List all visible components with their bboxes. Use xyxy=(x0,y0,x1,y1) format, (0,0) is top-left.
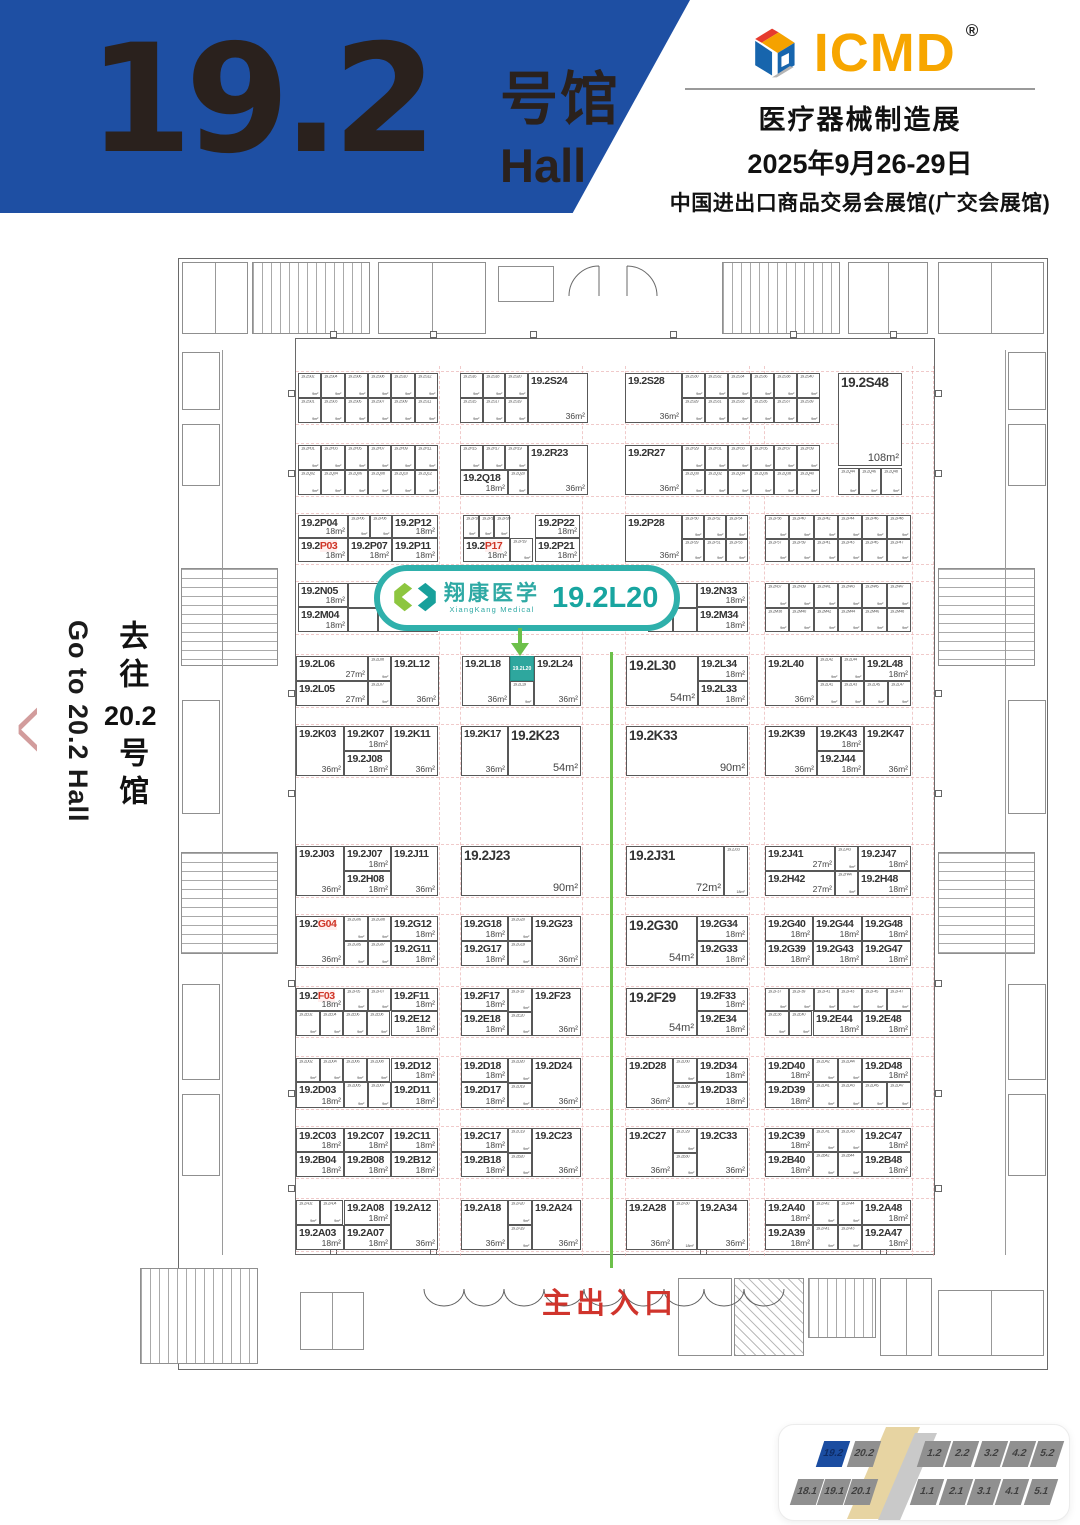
booth-19.2R05: 19.2R059m² xyxy=(345,445,368,470)
booth-19.2F39: 19.2F399m² xyxy=(789,988,813,1011)
booth-19.2D08: 19.2D089m² xyxy=(367,1058,391,1082)
booth-19.2L20: 19.2L20 xyxy=(510,656,534,681)
booth-19.2M38: 19.2M389m² xyxy=(765,608,789,633)
booth-19.2B08: 19.2B0818m² xyxy=(344,1152,391,1177)
booth-19.2J23: 19.2J2390m² xyxy=(461,846,581,896)
booth-19.2P21: 19.2P2118m² xyxy=(535,538,580,562)
booth-19.2Q18: 19.2Q1818m² xyxy=(460,470,508,495)
booth-19.2A08: 19.2A0818m² xyxy=(344,1200,391,1225)
registered-mark: ® xyxy=(966,21,979,41)
booth-19.2Q44: 19.2Q449m² xyxy=(838,468,859,495)
row-guide-line xyxy=(296,1251,934,1252)
booth-19.2L33: 19.2L3318m² xyxy=(698,681,748,706)
booth-19.2P39: 19.2P399m² xyxy=(789,539,813,563)
structure-vline xyxy=(222,350,223,1255)
aisle-guide-line xyxy=(749,366,750,1256)
booth-19.2S16: 19.2S169m² xyxy=(460,373,483,398)
booth-19.2J33: 19.2J3318m² xyxy=(724,846,748,896)
booth-19.2N39: 19.2N399m² xyxy=(789,583,813,608)
booth-19.2G34: 19.2G3418m² xyxy=(697,916,748,941)
aisle-guide-line xyxy=(764,366,765,1256)
booth-19.2R15: 19.2R159m² xyxy=(460,445,483,470)
booth-19.2S33: 19.2S339m² xyxy=(728,398,751,423)
booth-19.2S10: 19.2S109m² xyxy=(391,373,414,398)
booth-19.2E20: 19.2E209m² xyxy=(508,1012,532,1036)
booth-19.2G17: 19.2G1718m² xyxy=(461,941,508,966)
booth-19.2S34: 19.2S349m² xyxy=(728,373,751,398)
booth-19.2B30: 19.2B309m² xyxy=(673,1153,697,1178)
booth-19.2G04: 19.2G0436m² xyxy=(296,916,344,966)
aisle-guide-line xyxy=(460,366,461,1256)
booth-19.2A20: 19.2A209m² xyxy=(508,1200,532,1225)
booth-19.2B04: 19.2B0418m² xyxy=(296,1152,344,1177)
structure-stairsv xyxy=(181,568,278,666)
booth-19.2G06: 19.2G069m² xyxy=(344,916,368,941)
booth-19.2E04: 19.2E049m² xyxy=(320,1011,344,1036)
booth-19.2S04: 19.2S049m² xyxy=(321,373,344,398)
booth-19.2C43: 19.2C439m² xyxy=(838,1128,863,1152)
booth-19.2D19: 19.2D199m² xyxy=(508,1083,532,1108)
booth-19.2M44: 19.2M449m² xyxy=(838,608,862,633)
structure-room xyxy=(498,266,554,302)
hall-banner: 19.2 号馆 Hall xyxy=(0,0,690,213)
expo-name: 医疗器械制造展 xyxy=(645,98,1075,137)
booth-19.2S31: 19.2S319m² xyxy=(705,398,728,423)
booth-19.2E48: 19.2E4818m² xyxy=(862,1011,911,1036)
structure-room xyxy=(182,424,220,486)
booth-19.2P28: 19.2P2836m² xyxy=(625,515,682,562)
booth-19.2G11: 19.2G1118m² xyxy=(391,941,438,966)
brand-name: ICMD xyxy=(814,22,956,84)
structure-room2 xyxy=(300,1292,364,1350)
structure-stairs xyxy=(722,262,840,334)
overview-minimap: 19.220.21.22.23.24.25.218.119.120.11.12.… xyxy=(778,1424,1070,1521)
booth-19.2Q48: 19.2Q489m² xyxy=(881,468,902,495)
booth-19.2N43: 19.2N439m² xyxy=(838,583,862,608)
booth-19.2S29: 19.2S299m² xyxy=(682,398,705,423)
booth-19.2H08: 19.2H0818m² xyxy=(344,871,391,896)
booth-19.2A02: 19.2A029m² xyxy=(296,1200,320,1225)
booth-19.2A18: 19.2A1836m² xyxy=(461,1200,508,1250)
structure-room xyxy=(182,1094,220,1176)
header-divider xyxy=(685,88,1035,90)
booth-19.2E18: 19.2E1818m² xyxy=(461,1011,508,1036)
booth-19.2A04: 19.2A049m² xyxy=(320,1200,344,1225)
booth-19.2F41: 19.2F419m² xyxy=(814,988,838,1011)
booth-19.2Q12: 19.2Q129m² xyxy=(415,470,438,495)
structure-room xyxy=(182,984,220,1080)
booth-19.2L48: 19.2L4818m² xyxy=(864,656,911,681)
booth-19.2C17: 19.2C1718m² xyxy=(461,1128,508,1152)
booth-19.2R03: 19.2R039m² xyxy=(321,445,344,470)
structure-door xyxy=(935,790,942,797)
booth-19.2N47: 19.2N479m² xyxy=(887,583,911,608)
booth-19.2D11: 19.2D1118m² xyxy=(391,1082,438,1108)
aisle-guide-line xyxy=(625,366,626,1256)
structure-door xyxy=(935,1090,942,1097)
booth-19.2R37: 19.2R379m² xyxy=(774,445,797,470)
booth-19.2F03: 19.2F0318m² xyxy=(296,988,344,1011)
row-guide-line xyxy=(296,967,934,968)
booth-19.2P33: 19.2P339m² xyxy=(726,539,748,563)
booth-19.2K07: 19.2K0718m² xyxy=(344,726,391,751)
booth-19.2P08: 19.2P089m² xyxy=(370,515,392,538)
structure-stairs xyxy=(252,262,370,334)
booth-19.2C29: 19.2C299m² xyxy=(673,1128,697,1153)
expo-date: 2025年9月26-29日 xyxy=(645,142,1075,181)
booth-19.2F17: 19.2F1718m² xyxy=(461,988,508,1011)
booth-19.2Q46: 19.2Q469m² xyxy=(859,468,880,495)
booth-19.2B12: 19.2B1218m² xyxy=(391,1152,438,1177)
structure-room xyxy=(1008,352,1046,410)
structure-room2 xyxy=(182,262,248,334)
booth-19.2L30: 19.2L3054m² xyxy=(626,656,698,706)
booth-19.2S38: 19.2S389m² xyxy=(774,373,797,398)
booth-19.2E08: 19.2E089m² xyxy=(367,1011,391,1036)
booth-19.2E34: 19.2E3418m² xyxy=(697,1011,748,1036)
booth-19.2L05: 19.2L0527m² xyxy=(296,681,368,706)
booth-19.2P43: 19.2P439m² xyxy=(838,539,862,563)
booth-19.2J44: 19.2J4418m² xyxy=(817,751,864,776)
booth-19.2K43: 19.2K4318m² xyxy=(817,726,864,751)
booth-19.2A07: 19.2A0718m² xyxy=(344,1225,391,1250)
booth-19.2A03: 19.2A0318m² xyxy=(296,1225,344,1250)
booth-19.2E12: 19.2E1218m² xyxy=(391,1011,438,1036)
booth-19.2Q04: 19.2Q049m² xyxy=(321,470,344,495)
booth-19.2K33: 19.2K3390m² xyxy=(626,726,748,776)
booth-19.2D47: 19.2D479m² xyxy=(887,1082,912,1108)
booth-19.2G07: 19.2G079m² xyxy=(368,941,392,966)
booth-19.2D20: 19.2D209m² xyxy=(508,1058,532,1083)
booth-19.2G44: 19.2G4418m² xyxy=(813,916,862,941)
booth-19.2R09: 19.2R099m² xyxy=(391,445,414,470)
booth-19.2Q08: 19.2Q089m² xyxy=(368,470,391,495)
aisle-guide-line xyxy=(933,366,934,1256)
callout-arrow-icon xyxy=(518,628,522,644)
goto-cn-bottom: 号馆 xyxy=(108,737,152,813)
booth-19.2B20: 19.2B209m² xyxy=(508,1153,532,1178)
booth-19.2L40: 19.2L4036m² xyxy=(765,656,817,706)
company-name-en: XiangKang Medical xyxy=(449,606,534,614)
booth-19.2L44: 19.2L449m² xyxy=(841,656,865,681)
booth-19.2A24: 19.2A2436m² xyxy=(532,1200,581,1250)
booth-19.2D18: 19.2D1818m² xyxy=(461,1058,508,1082)
booth-19.2G20: 19.2G209m² xyxy=(508,916,532,941)
structure-door xyxy=(935,1185,942,1192)
icmd-cube-icon xyxy=(742,23,804,83)
structure-door xyxy=(288,980,295,987)
booth-19.2J07: 19.2J0718m² xyxy=(344,846,391,871)
structure-room2 xyxy=(938,1290,1044,1356)
booth-19.2S28: 19.2S2836m² xyxy=(625,373,682,423)
highlighted-booth-number: 19.2L20 xyxy=(552,582,658,615)
booth-19.2P41: 19.2P419m² xyxy=(814,539,838,563)
booth-19.2Q20: 19.2Q209m² xyxy=(508,470,528,495)
booth-19.2B18: 19.2B1818m² xyxy=(461,1152,508,1177)
booth-19.2P04: 19.2P0418m² xyxy=(298,515,348,538)
hall-label-cn: 号馆 xyxy=(500,52,620,136)
aisle-guide-line xyxy=(912,366,913,1256)
structure-door xyxy=(288,470,295,477)
goto-cn-top: 去往 xyxy=(108,620,152,696)
structure-stairs xyxy=(140,1268,258,1364)
booth-19.2L08: 19.2L089m² xyxy=(368,656,391,681)
booth-19.2S32: 19.2S329m² xyxy=(705,373,728,398)
structure-door xyxy=(935,470,942,477)
booth-19.2F23: 19.2F2336m² xyxy=(532,988,581,1036)
row-guide-line xyxy=(296,707,934,708)
booth-19.2G40: 19.2G4018m² xyxy=(765,916,813,941)
booth-19.2S24: 19.2S2436m² xyxy=(528,373,588,423)
booth-19.2A44: 19.2A449m² xyxy=(838,1200,863,1225)
booth-19.2C39: 19.2C3918m² xyxy=(765,1128,813,1152)
booth-19.2D30: 19.2D309m² xyxy=(673,1058,697,1083)
structure-room xyxy=(182,700,220,814)
booth-19.2D44: 19.2D449m² xyxy=(838,1058,863,1082)
booth-19.2A42: 19.2A429m² xyxy=(813,1200,838,1225)
booth-19.2C19: 19.2C199m² xyxy=(508,1128,532,1153)
booth-19.2A19: 19.2A199m² xyxy=(508,1225,532,1250)
structure-stairsv xyxy=(181,852,278,954)
row-guide-line xyxy=(296,897,934,898)
booth-19.2C47: 19.2C4718m² xyxy=(862,1128,911,1152)
booth-19.2M04: 19.2M0418m² xyxy=(298,607,348,632)
booth-19.2S40: 19.2S409m² xyxy=(797,373,820,398)
booth-19.2Q40: 19.2Q409m² xyxy=(797,470,820,495)
booth-19.2G23: 19.2G2336m² xyxy=(532,916,581,966)
booth-19.2F47: 19.2F479m² xyxy=(887,988,911,1011)
booth-19.2S18: 19.2S189m² xyxy=(483,373,506,398)
booth-19.2F43: 19.2F439m² xyxy=(838,988,862,1011)
structure-room xyxy=(1008,1094,1046,1176)
booth-19.2A41: 19.2A419m² xyxy=(813,1225,838,1250)
booth-19.2Q02: 19.2Q029m² xyxy=(298,470,321,495)
booth-cell xyxy=(348,608,378,633)
booth-19.2D43: 19.2D439m² xyxy=(838,1082,863,1108)
row-guide-line xyxy=(296,724,934,725)
booth-19.2Q30: 19.2Q309m² xyxy=(682,470,705,495)
booth-19.2B44: 19.2B449m² xyxy=(838,1152,863,1177)
booth-19.2J31: 19.2J3172m² xyxy=(626,846,724,896)
booth-19.2J11: 19.2J1136m² xyxy=(391,846,438,896)
booth-19.2S05: 19.2S059m² xyxy=(345,398,368,423)
booth-19.2M46: 19.2M469m² xyxy=(862,608,886,633)
booth-19.2F07: 19.2F079m² xyxy=(368,988,392,1011)
booth-19.2P19: 19.2P199m² xyxy=(510,538,533,562)
booth-19.2N45: 19.2N459m² xyxy=(862,583,886,608)
structure-room xyxy=(1008,700,1046,814)
booth-19.2D17: 19.2D1718m² xyxy=(461,1082,508,1108)
structure-room xyxy=(1008,424,1046,486)
structure-room2 xyxy=(938,262,1044,334)
booth-19.2P06: 19.2P069m² xyxy=(348,515,370,538)
booth-19.2K47: 19.2K4736m² xyxy=(864,726,911,776)
booth-19.2F45: 19.2F459m² xyxy=(862,988,886,1011)
booth-19.2D41: 19.2D419m² xyxy=(813,1082,838,1108)
booth-19.2S07: 19.2S079m² xyxy=(368,398,391,423)
booth-19.2F33: 19.2F3318m² xyxy=(697,988,748,1011)
structure-door xyxy=(288,790,295,797)
booth-19.2Q36: 19.2Q369m² xyxy=(751,470,774,495)
booth-19.2B48: 19.2B4818m² xyxy=(862,1152,911,1177)
structure-door xyxy=(935,690,942,697)
booth-19.2D48: 19.2D4818m² xyxy=(862,1058,911,1082)
row-guide-line xyxy=(296,371,934,372)
booth-19.2S08: 19.2S089m² xyxy=(368,373,391,398)
row-guide-line xyxy=(296,1056,934,1057)
structure-stairs xyxy=(808,1278,876,1338)
booth-19.2G39: 19.2G3918m² xyxy=(765,941,813,966)
company-name-cn: 翔康医学 xyxy=(444,583,540,604)
structure-door xyxy=(330,331,337,338)
booth-19.2D33: 19.2D3318m² xyxy=(697,1082,748,1108)
booth-19.2E02: 19.2E029m² xyxy=(296,1011,320,1036)
booth-19.2C03: 19.2C0318m² xyxy=(296,1128,344,1152)
booth-19.2H42: 19.2H4227m² xyxy=(765,871,835,896)
booth-19.2C23: 19.2C2336m² xyxy=(532,1128,581,1177)
top-entrance-doors-icon xyxy=(563,260,663,300)
booth-19.2M48: 19.2M489m² xyxy=(887,608,911,633)
goto-hall-cn: 去往 20.2 号馆 xyxy=(104,620,157,813)
structure-door xyxy=(670,331,677,338)
booth-19.2D07: 19.2D079m² xyxy=(368,1082,392,1108)
goto-hall-en: Go to 20.2 Hall xyxy=(62,620,93,870)
booth-19.2F11: 19.2F1118m² xyxy=(391,988,438,1011)
booth-19.2P31: 19.2P319m² xyxy=(704,539,726,563)
booth-19.2L41: 19.2L419m² xyxy=(817,681,841,706)
booth-19.2M40: 19.2M409m² xyxy=(789,608,813,633)
booth-19.2A43: 19.2A439m² xyxy=(838,1225,863,1250)
booth-19.2K11: 19.2K1136m² xyxy=(391,726,438,776)
row-guide-line xyxy=(296,844,934,845)
booth-19.2S19: 19.2S199m² xyxy=(505,398,528,423)
booth-19.2P12: 19.2P1218m² xyxy=(392,515,438,538)
booth-19.2P37: 19.2P379m² xyxy=(765,539,789,563)
route-line xyxy=(610,652,613,1268)
expo-venue: 中国进出口商品交易会展馆(广交会展馆) xyxy=(645,187,1075,217)
hall-number: 19.2 xyxy=(88,18,430,183)
booth-19.2P17: 19.2P1718m² xyxy=(463,538,510,562)
booth-19.2M34: 19.2M3418m² xyxy=(697,607,748,632)
booth-19.2L06: 19.2L0627m² xyxy=(296,656,368,681)
booth-19.2K39: 19.2K3936m² xyxy=(765,726,817,776)
booth-19.2D24: 19.2D2436m² xyxy=(532,1058,581,1108)
booth-19.2L18: 19.2L1836m² xyxy=(462,656,510,706)
booth-19.2R29: 19.2R299m² xyxy=(682,445,705,470)
row-guide-line xyxy=(296,634,934,635)
structure-door xyxy=(530,331,537,338)
booth-19.2Q10: 19.2Q109m² xyxy=(391,470,414,495)
booth-19.2F29: 19.2F2954m² xyxy=(626,988,697,1036)
booth-19.2N41: 19.2N419m² xyxy=(814,583,838,608)
structure-door xyxy=(288,690,295,697)
booth-19.2P45: 19.2P459m² xyxy=(862,539,886,563)
booth-19.2A12: 19.2A1236m² xyxy=(391,1200,438,1250)
booth-19.2Q32: 19.2Q329m² xyxy=(705,470,728,495)
booth-19.2K03: 19.2K0336m² xyxy=(296,726,344,776)
row-guide-line xyxy=(296,986,934,987)
goto-hall-number: 20.2 xyxy=(104,701,157,732)
structure-room xyxy=(1008,984,1046,1080)
booth-19.2F37: 19.2F379m² xyxy=(765,988,789,1011)
booth-19.2R11: 19.2R119m² xyxy=(415,445,438,470)
booth-19.2G33: 19.2G3318m² xyxy=(697,941,748,966)
booth-19.2G05: 19.2G059m² xyxy=(344,941,368,966)
expo-header: ICMD ® 医疗器械制造展 2025年9月26-29日 中国进出口商品交易会展… xyxy=(645,10,1075,230)
booth-19.2P38: 19.2P389m² xyxy=(765,515,789,539)
booth-19.2G30: 19.2G3054m² xyxy=(626,916,697,966)
booth-19.2L12: 19.2L1236m² xyxy=(391,656,439,706)
booth-19.2G19: 19.2G199m² xyxy=(508,941,532,966)
wayfinding-left: < Go to 20.2 Hall 去往 20.2 号馆 xyxy=(16,618,148,873)
booth-19.2L42: 19.2L429m² xyxy=(817,656,841,681)
booth-19.2G47: 19.2G4718m² xyxy=(862,941,911,966)
booth-19.2S30: 19.2S309m² xyxy=(682,373,705,398)
booth-19.2R23: 19.2R2336m² xyxy=(528,445,588,495)
booth-19.2A34: 19.2A3436m² xyxy=(697,1200,748,1250)
booth-19.2E40: 19.2E409m² xyxy=(789,1011,813,1036)
booth-19.2E44: 19.2E4418m² xyxy=(813,1011,862,1036)
booth-19.2D05: 19.2D059m² xyxy=(344,1082,368,1108)
booth-19.2P48: 19.2P489m² xyxy=(887,515,911,539)
booth-19.2A40: 19.2A4018m² xyxy=(765,1200,813,1225)
booth-19.2P20: 19.2P209m² xyxy=(494,515,510,538)
booth-19.2S06: 19.2S069m² xyxy=(345,373,368,398)
minimap-hall-19.2: 19.2 xyxy=(816,1441,850,1467)
booth-19.2E06: 19.2E069m² xyxy=(343,1011,367,1036)
booth-19.2Q34: 19.2Q349m² xyxy=(728,470,751,495)
booth-19.2J47: 19.2J4718m² xyxy=(858,846,911,871)
booth-19.2D06: 19.2D069m² xyxy=(343,1058,367,1082)
booth-19.2A48: 19.2A4818m² xyxy=(862,1200,911,1225)
main-entrance-label: 主出入口 xyxy=(495,1280,725,1322)
booth-19.2G43: 19.2G4318m² xyxy=(813,941,862,966)
booth-19.2D39: 19.2D3918m² xyxy=(765,1082,813,1108)
booth-19.2S02: 19.2S029m² xyxy=(298,373,321,398)
structure-room2 xyxy=(880,1278,932,1356)
booth-19.2P34: 19.2P349m² xyxy=(726,515,748,539)
structure-stairsv xyxy=(938,568,1035,666)
booth-19.2A28: 19.2A2836m² xyxy=(626,1200,673,1250)
booth-19.2D03: 19.2D0318m² xyxy=(296,1082,344,1108)
booth-19.2K23: 19.2K2354m² xyxy=(508,726,581,776)
booth-19.2J03: 19.2J0336m² xyxy=(296,846,344,896)
booth-19.2D29: 19.2D299m² xyxy=(673,1083,697,1108)
booth-19.2R19: 19.2R199m² xyxy=(505,445,528,470)
booth-19.2N37: 19.2N379m² xyxy=(765,583,789,608)
structure-door xyxy=(935,980,942,987)
structure-door xyxy=(288,1185,295,1192)
structure-room xyxy=(182,352,220,410)
booth-19.2S12: 19.2S129m² xyxy=(415,373,438,398)
booth-19.2A30: 19.2A3018m² xyxy=(673,1200,697,1250)
structure-door xyxy=(288,1090,295,1097)
booth-19.2D34: 19.2D3418m² xyxy=(697,1058,748,1082)
booth-19.2K17: 19.2K1736m² xyxy=(461,726,508,776)
booth-19.2C07: 19.2C0718m² xyxy=(344,1128,391,1152)
booth-19.2C27: 19.2C2736m² xyxy=(626,1128,673,1177)
booth-19.2E38: 19.2E389m² xyxy=(765,1011,789,1036)
row-guide-line xyxy=(296,1109,934,1110)
booth-19.2R17: 19.2R179m² xyxy=(483,445,506,470)
booth-19.2P22: 19.2P2218m² xyxy=(535,515,580,538)
highlight-callout: 翔康医学 XiangKang Medical 19.2L20 xyxy=(374,565,680,631)
booth-19.2Q06: 19.2Q069m² xyxy=(345,470,368,495)
booth-19.2L07: 19.2L079m² xyxy=(368,681,391,706)
booth-19.2P46: 19.2P469m² xyxy=(862,515,886,539)
booth-19.2P40: 19.2P409m² xyxy=(789,515,813,539)
booth-19.2L34: 19.2L3418m² xyxy=(698,656,748,681)
